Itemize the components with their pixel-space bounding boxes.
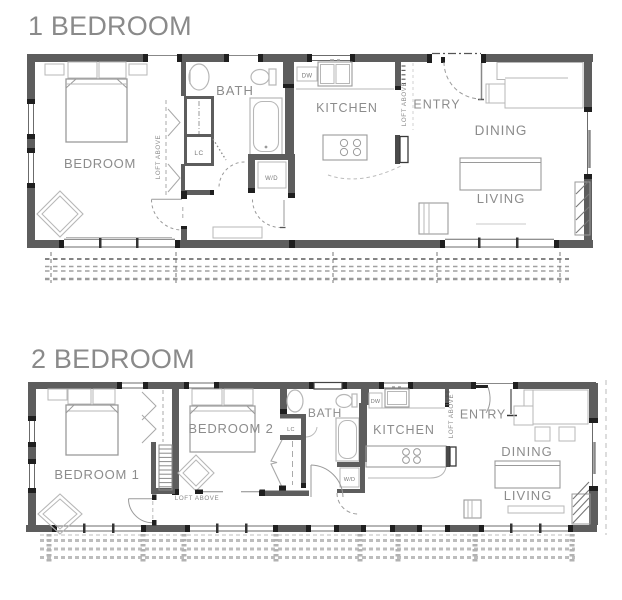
svg-text:DW: DW [371, 399, 381, 405]
svg-text:KITCHEN: KITCHEN [373, 423, 435, 437]
svg-text:BATH: BATH [216, 83, 254, 98]
svg-text:ENTRY: ENTRY [413, 98, 460, 112]
svg-text:W/D: W/D [344, 477, 356, 483]
svg-text:LOFT ABOVE: LOFT ABOVE [175, 495, 219, 502]
svg-text:DINING: DINING [501, 444, 553, 459]
svg-text:LIVING: LIVING [477, 191, 526, 206]
svg-text:BEDROOM: BEDROOM [64, 156, 136, 171]
svg-text:LC: LC [194, 150, 203, 157]
svg-text:1 BEDROOM: 1 BEDROOM [28, 11, 192, 41]
svg-text:LC: LC [287, 427, 295, 433]
svg-text:LOFT ABOVE: LOFT ABOVE [155, 135, 162, 179]
svg-text:LOFT ABOVE: LOFT ABOVE [401, 82, 408, 126]
svg-text:ENTRY: ENTRY [460, 408, 506, 422]
svg-text:BEDROOM 2: BEDROOM 2 [188, 421, 273, 436]
svg-text:DINING: DINING [475, 123, 528, 138]
svg-text:KITCHEN: KITCHEN [316, 101, 378, 115]
svg-text:BEDROOM 1: BEDROOM 1 [54, 467, 139, 482]
svg-text:LIVING: LIVING [504, 488, 553, 503]
svg-text:W/D: W/D [265, 176, 278, 182]
svg-text:2 BEDROOM: 2 BEDROOM [31, 344, 195, 374]
svg-text:DW: DW [302, 74, 313, 80]
